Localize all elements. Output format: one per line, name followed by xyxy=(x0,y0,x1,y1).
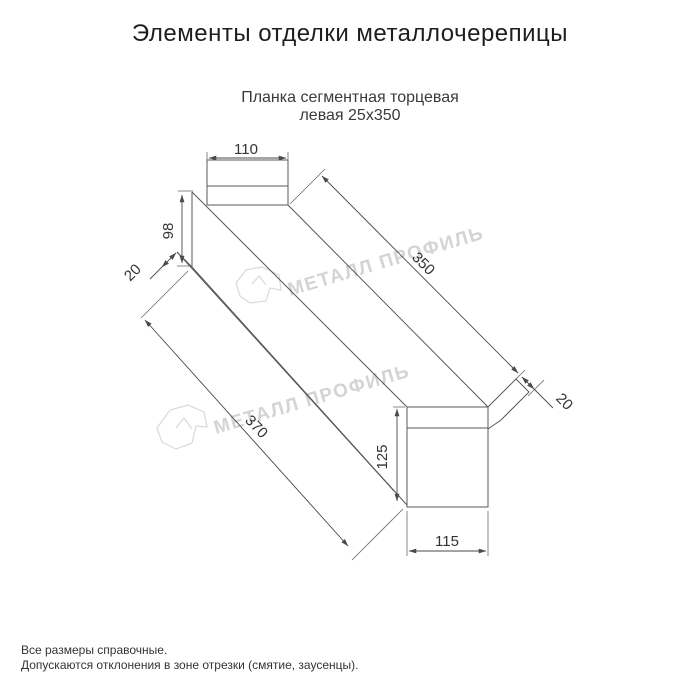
dim-115-label: 115 xyxy=(435,533,459,550)
metall-profil-logo-notch xyxy=(252,276,266,285)
extension-lines xyxy=(141,152,544,560)
watermark-text: МЕТАЛЛ ПРОФИЛЬ xyxy=(285,223,486,301)
footer-note-1: Все размеры справочные. xyxy=(21,643,358,658)
metall-profil-logo-notch xyxy=(176,418,192,429)
metall-profil-logo-icon xyxy=(157,405,207,449)
page: Элементы отделки металлочерепицы Планка … xyxy=(0,0,700,700)
footer-note-2: Допускаются отклонения в зоне отрезки (с… xyxy=(21,658,358,673)
dim-110-label: 110 xyxy=(234,141,258,158)
watermark-upper: МЕТАЛЛ ПРОФИЛЬ xyxy=(236,223,487,303)
dimension-lines xyxy=(145,158,553,551)
technical-drawing: МЕТАЛЛ ПРОФИЛЬ МЕТАЛЛ ПРОФИЛЬ xyxy=(0,0,700,700)
metall-profil-logo-icon xyxy=(236,267,281,303)
footer-notes: Все размеры справочные. Допускаются откл… xyxy=(21,643,358,673)
dim-98-label: 98 xyxy=(160,223,177,240)
dim-20-upper-label: 20 xyxy=(121,261,145,285)
dim-20-lower-label: 20 xyxy=(552,390,576,414)
dim-125-label: 125 xyxy=(374,444,391,469)
object-lines xyxy=(177,160,529,507)
